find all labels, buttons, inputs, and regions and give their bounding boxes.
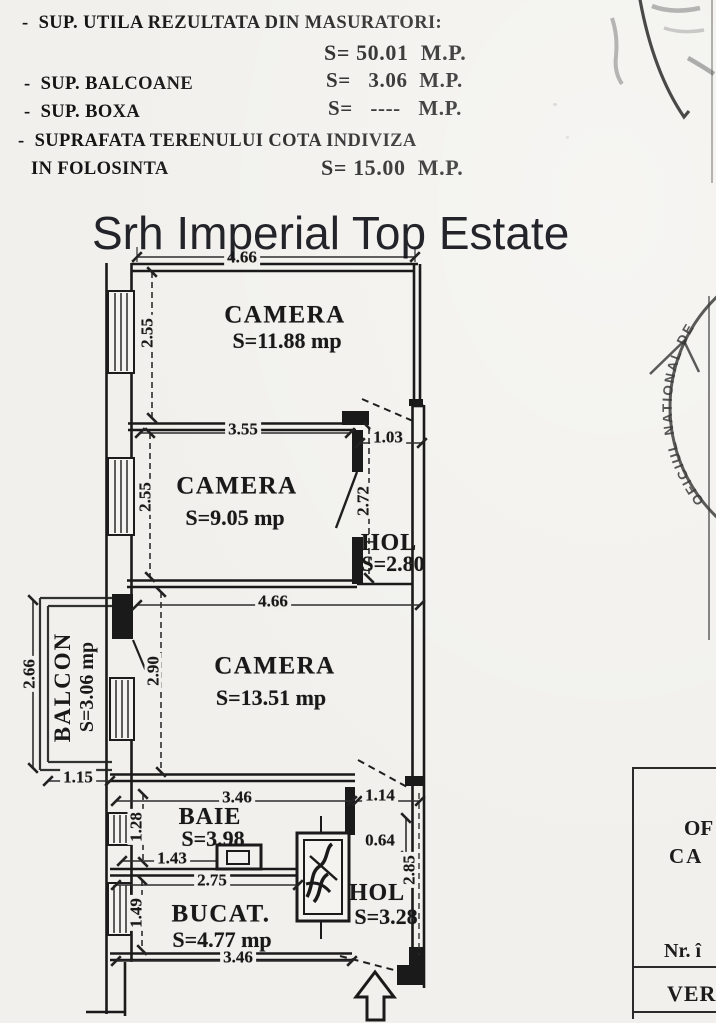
info-box-line1: OF <box>684 816 713 841</box>
room-area-hol2: S=3.28 <box>354 906 417 928</box>
info-box-line4: VER <box>667 981 716 1007</box>
dim-hol2-right-height: 2.85 <box>401 852 418 888</box>
dim-hall-height: 2.72 <box>355 483 372 519</box>
room-area-camera3: S=13.51 mp <box>216 687 326 709</box>
room-name-balcon: BALCON <box>50 632 76 742</box>
dim-bucatarie-bottom-width: 3.46 <box>220 949 256 966</box>
round-stamp-text: OFICIUL NATIONAL DE <box>660 320 707 508</box>
room-name-camera1: CAMERA <box>224 303 346 328</box>
info-box-divider <box>632 1011 716 1013</box>
info-box-line3: Nr. î <box>664 940 701 963</box>
info-box-divider <box>632 966 716 968</box>
dim-balcon-height: 2.66 <box>21 656 38 692</box>
dim-hol2-niche-height: 0.64 <box>362 832 398 849</box>
dim-hall-top-width: 1.03 <box>370 429 406 446</box>
room-name-camera2: CAMERA <box>176 474 298 499</box>
room-name-camera3: CAMERA <box>214 654 336 679</box>
dim-camera2-width: 3.55 <box>225 421 261 438</box>
stamps: OFICIUL NATIONAL DE <box>612 0 716 640</box>
info-box-line2: CA <box>669 844 703 869</box>
dim-baie-width: 3.46 <box>219 789 255 806</box>
dim-baie-window-width: 1.28 <box>128 809 145 845</box>
watermark-text: Srh Imperial Top Estate <box>92 206 569 260</box>
dim-hol2-top-width: 1.14 <box>362 787 398 804</box>
room-area-balcon: S=3.06 mp <box>76 632 98 742</box>
room-label-balcon: BALCON S=3.06 mp <box>50 632 98 742</box>
dim-camera2-height: 2.55 <box>137 479 154 515</box>
room-name-bucatarie: BUCAT. <box>171 902 270 927</box>
room-area-baie: S=3.98 <box>181 828 244 850</box>
dim-camera3-height: 2.90 <box>145 653 162 689</box>
svg-text:OFICIUL NATIONAL DE: OFICIUL NATIONAL DE <box>660 320 707 508</box>
dim-camera3-width: 4.66 <box>255 593 291 610</box>
dim-bucatarie-window-width: 1.49 <box>128 895 145 931</box>
room-area-camera1: S=11.88 mp <box>232 330 341 352</box>
dim-baie-door-width: 1.43 <box>154 850 190 867</box>
ventilation-shaft <box>297 816 349 939</box>
room-area-camera2: S=9.05 mp <box>185 507 284 529</box>
room-name-hol2: HOL <box>349 881 405 905</box>
corner-stamp-arc <box>639 0 689 117</box>
room-area-hol1: S=2.80 <box>361 553 424 575</box>
dim-camera1-height: 2.55 <box>139 315 156 351</box>
entrance-arrow <box>356 972 394 1020</box>
dim-balcon-width: 1.15 <box>60 769 96 786</box>
dim-bucatarie-width: 2.75 <box>194 872 230 889</box>
scanned-floorplan-page: - SUP. UTILA REZULTATA DIN MASURATORI: S… <box>0 0 716 1023</box>
